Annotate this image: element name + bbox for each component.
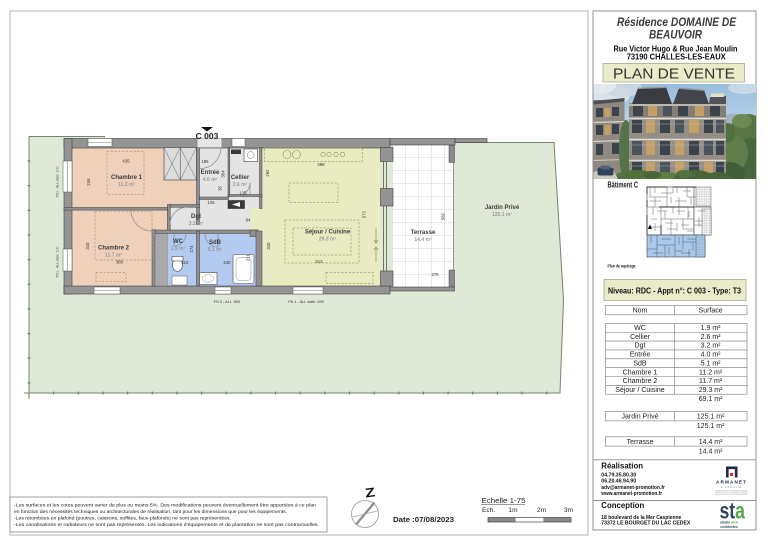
svg-text:04.79.35.80.30: 04.79.35.80.30 <box>601 472 636 478</box>
svg-text:11.7 m²: 11.7 m² <box>105 253 122 259</box>
svg-text:211: 211 <box>246 253 251 260</box>
svg-text:582: 582 <box>441 212 446 220</box>
svg-text:73190 CHALLES-LES-EAUX: 73190 CHALLES-LES-EAUX <box>627 51 726 61</box>
svg-text:125: 125 <box>239 191 247 196</box>
svg-text:PLAN DE VENTE: PLAN DE VENTE <box>613 67 735 83</box>
svg-text:-Les surfaces et les cotes peu: -Les surfaces et les cotes peuvent varie… <box>14 503 316 509</box>
svg-text:11.7 m²: 11.7 m² <box>699 378 723 385</box>
svg-text:94: 94 <box>246 218 251 223</box>
svg-text:FN1 - ALL dalle :100: FN1 - ALL dalle :100 <box>56 166 60 197</box>
svg-text:110: 110 <box>182 260 189 265</box>
svg-text:studio arch: studio arch <box>720 521 738 525</box>
svg-text:11.2 m²: 11.2 m² <box>699 369 723 376</box>
svg-text:architectes: architectes <box>720 525 738 529</box>
svg-text:Cellier: Cellier <box>630 334 651 341</box>
svg-text:Dgt: Dgt <box>191 214 201 220</box>
svg-text:C 003: C 003 <box>196 131 219 141</box>
svg-text:3m: 3m <box>564 507 573 514</box>
svg-text:310: 310 <box>266 242 271 250</box>
svg-text:11.2 m²: 11.2 m² <box>118 182 135 188</box>
svg-text:www.armanet-promotion.fr: www.armanet-promotion.fr <box>600 491 662 497</box>
svg-text:WC: WC <box>634 325 646 332</box>
svg-text:3.2 m²: 3.2 m² <box>189 221 204 227</box>
svg-text:246: 246 <box>86 178 91 186</box>
svg-text:14.4 m²: 14.4 m² <box>699 448 723 455</box>
svg-text:Niveau: RDC - Appt n°: C 003 -: Niveau: RDC - Appt n°: C 003 - Type: T3 <box>608 287 741 296</box>
svg-text:Réalisation: Réalisation <box>601 460 643 470</box>
svg-text:-Les retombées en plafond (pou: -Les retombées en plafond (poutres, cais… <box>14 516 231 522</box>
svg-text:14.4 m²: 14.4 m² <box>699 439 723 446</box>
svg-text:125: 125 <box>207 200 215 205</box>
svg-text:BEAUVOIR: BEAUVOIR <box>649 30 703 42</box>
svg-text:adv@armanet-promotion.fr: adv@armanet-promotion.fr <box>601 485 665 491</box>
svg-text:2m: 2m <box>537 507 546 514</box>
svg-text:Chambre 1: Chambre 1 <box>111 175 143 181</box>
svg-text:SdB: SdB <box>633 360 647 367</box>
svg-text:513: 513 <box>315 259 323 264</box>
svg-text:125.1 m²: 125.1 m² <box>492 212 512 218</box>
svg-text:1m: 1m <box>508 507 517 514</box>
svg-text:4.0 m²: 4.0 m² <box>203 177 218 183</box>
svg-text:1.9 m²: 1.9 m² <box>171 246 186 252</box>
svg-text:2.6 m²: 2.6 m² <box>701 334 722 341</box>
svg-text:Dgt: Dgt <box>635 343 646 350</box>
svg-text:Terrasse: Terrasse <box>627 439 654 446</box>
svg-text:435: 435 <box>122 159 130 164</box>
svg-text:Echelle 1-75: Echelle 1-75 <box>482 496 526 505</box>
svg-text:572: 572 <box>362 210 367 218</box>
svg-text:5.1 m²: 5.1 m² <box>701 360 722 367</box>
svg-text:-Les canalisations et radiateu: -Les canalisations et radiateurs ne sont… <box>14 522 319 528</box>
svg-text:2.6 m²: 2.6 m² <box>233 182 248 188</box>
svg-text:380: 380 <box>116 260 124 265</box>
svg-text:1.9 m²: 1.9 m² <box>701 325 722 332</box>
svg-text:Date :07/08/2023: Date :07/08/2023 <box>393 515 454 524</box>
svg-text:FN 2 - ALL :500: FN 2 - ALL :500 <box>214 300 240 304</box>
svg-text:Jardin Privé: Jardin Privé <box>485 205 520 211</box>
svg-text:279: 279 <box>431 272 439 277</box>
svg-text:125.1 m²: 125.1 m² <box>697 413 725 420</box>
svg-text:185: 185 <box>201 159 209 164</box>
svg-text:SdB: SdB <box>209 240 222 246</box>
svg-text:en fonction des nécessités tec: en fonction des nécessités techniques ou… <box>14 509 287 515</box>
svg-text:Entrée: Entrée <box>201 170 220 176</box>
svg-text:262: 262 <box>265 169 270 177</box>
svg-text:240: 240 <box>223 260 231 265</box>
svg-text:73372 LE BOURGET DU LAC CEDEX: 73372 LE BOURGET DU LAC CEDEX <box>601 521 690 527</box>
svg-text:Séjour / Cuisine: Séjour / Cuisine <box>615 387 665 394</box>
svg-text:Surface: Surface <box>699 307 723 314</box>
svg-text:Conception: Conception <box>601 500 644 510</box>
svg-text:Chambre 2: Chambre 2 <box>623 378 658 385</box>
svg-text:FN 1 - ALL dalle :339: FN 1 - ALL dalle :339 <box>288 300 324 304</box>
svg-text:Jardin Privé: Jardin Privé <box>622 413 659 420</box>
svg-text:310: 310 <box>85 242 90 250</box>
svg-text:3.2 m²: 3.2 m² <box>701 343 722 350</box>
svg-text:14.4 m²: 14.4 m² <box>414 237 432 243</box>
svg-text:Chambre 2: Chambre 2 <box>98 246 130 252</box>
svg-text:498: 498 <box>317 162 325 167</box>
svg-text:69.1 m²: 69.1 m² <box>699 396 723 403</box>
svg-text:PROMOTION IMMOBILIÈRE: PROMOTION IMMOBILIÈRE <box>717 492 747 495</box>
svg-text:Entrée: Entrée <box>630 352 651 359</box>
svg-text:29.3 m²: 29.3 m² <box>699 387 723 394</box>
svg-text:29.3 m²: 29.3 m² <box>319 237 337 243</box>
svg-text:Chambre 1: Chambre 1 <box>623 369 658 376</box>
svg-text:354: 354 <box>221 170 226 178</box>
svg-text:4.0 m²: 4.0 m² <box>701 352 722 359</box>
svg-text:Séjour / Cuisine: Séjour / Cuisine <box>305 230 351 236</box>
svg-text:Ech.: Ech. <box>482 507 495 514</box>
svg-text:Bâtiment C: Bâtiment C <box>608 181 639 190</box>
svg-text:Z: Z <box>364 484 376 500</box>
svg-text:174: 174 <box>189 245 194 253</box>
svg-text:Plan de repérage: Plan de repérage <box>608 264 636 269</box>
svg-text:& ASSOCIÉ: & ASSOCIÉ <box>721 484 742 489</box>
svg-text:Résidence DOMAINE DE: Résidence DOMAINE DE <box>617 17 736 29</box>
svg-text:35: 35 <box>218 186 223 191</box>
svg-text:sta: sta <box>720 498 746 524</box>
svg-text:125.1 m²: 125.1 m² <box>697 423 725 430</box>
svg-text:WC: WC <box>173 239 184 245</box>
svg-text:06.20.46.94.90: 06.20.46.94.90 <box>601 479 636 485</box>
svg-text:Nom: Nom <box>633 307 648 314</box>
svg-text:5.1 m²: 5.1 m² <box>208 247 223 253</box>
svg-text:Terrasse: Terrasse <box>411 230 436 236</box>
svg-text:FN1 - ALL dalle :100: FN1 - ALL dalle :100 <box>56 246 60 277</box>
svg-text:Cellier: Cellier <box>231 175 250 181</box>
